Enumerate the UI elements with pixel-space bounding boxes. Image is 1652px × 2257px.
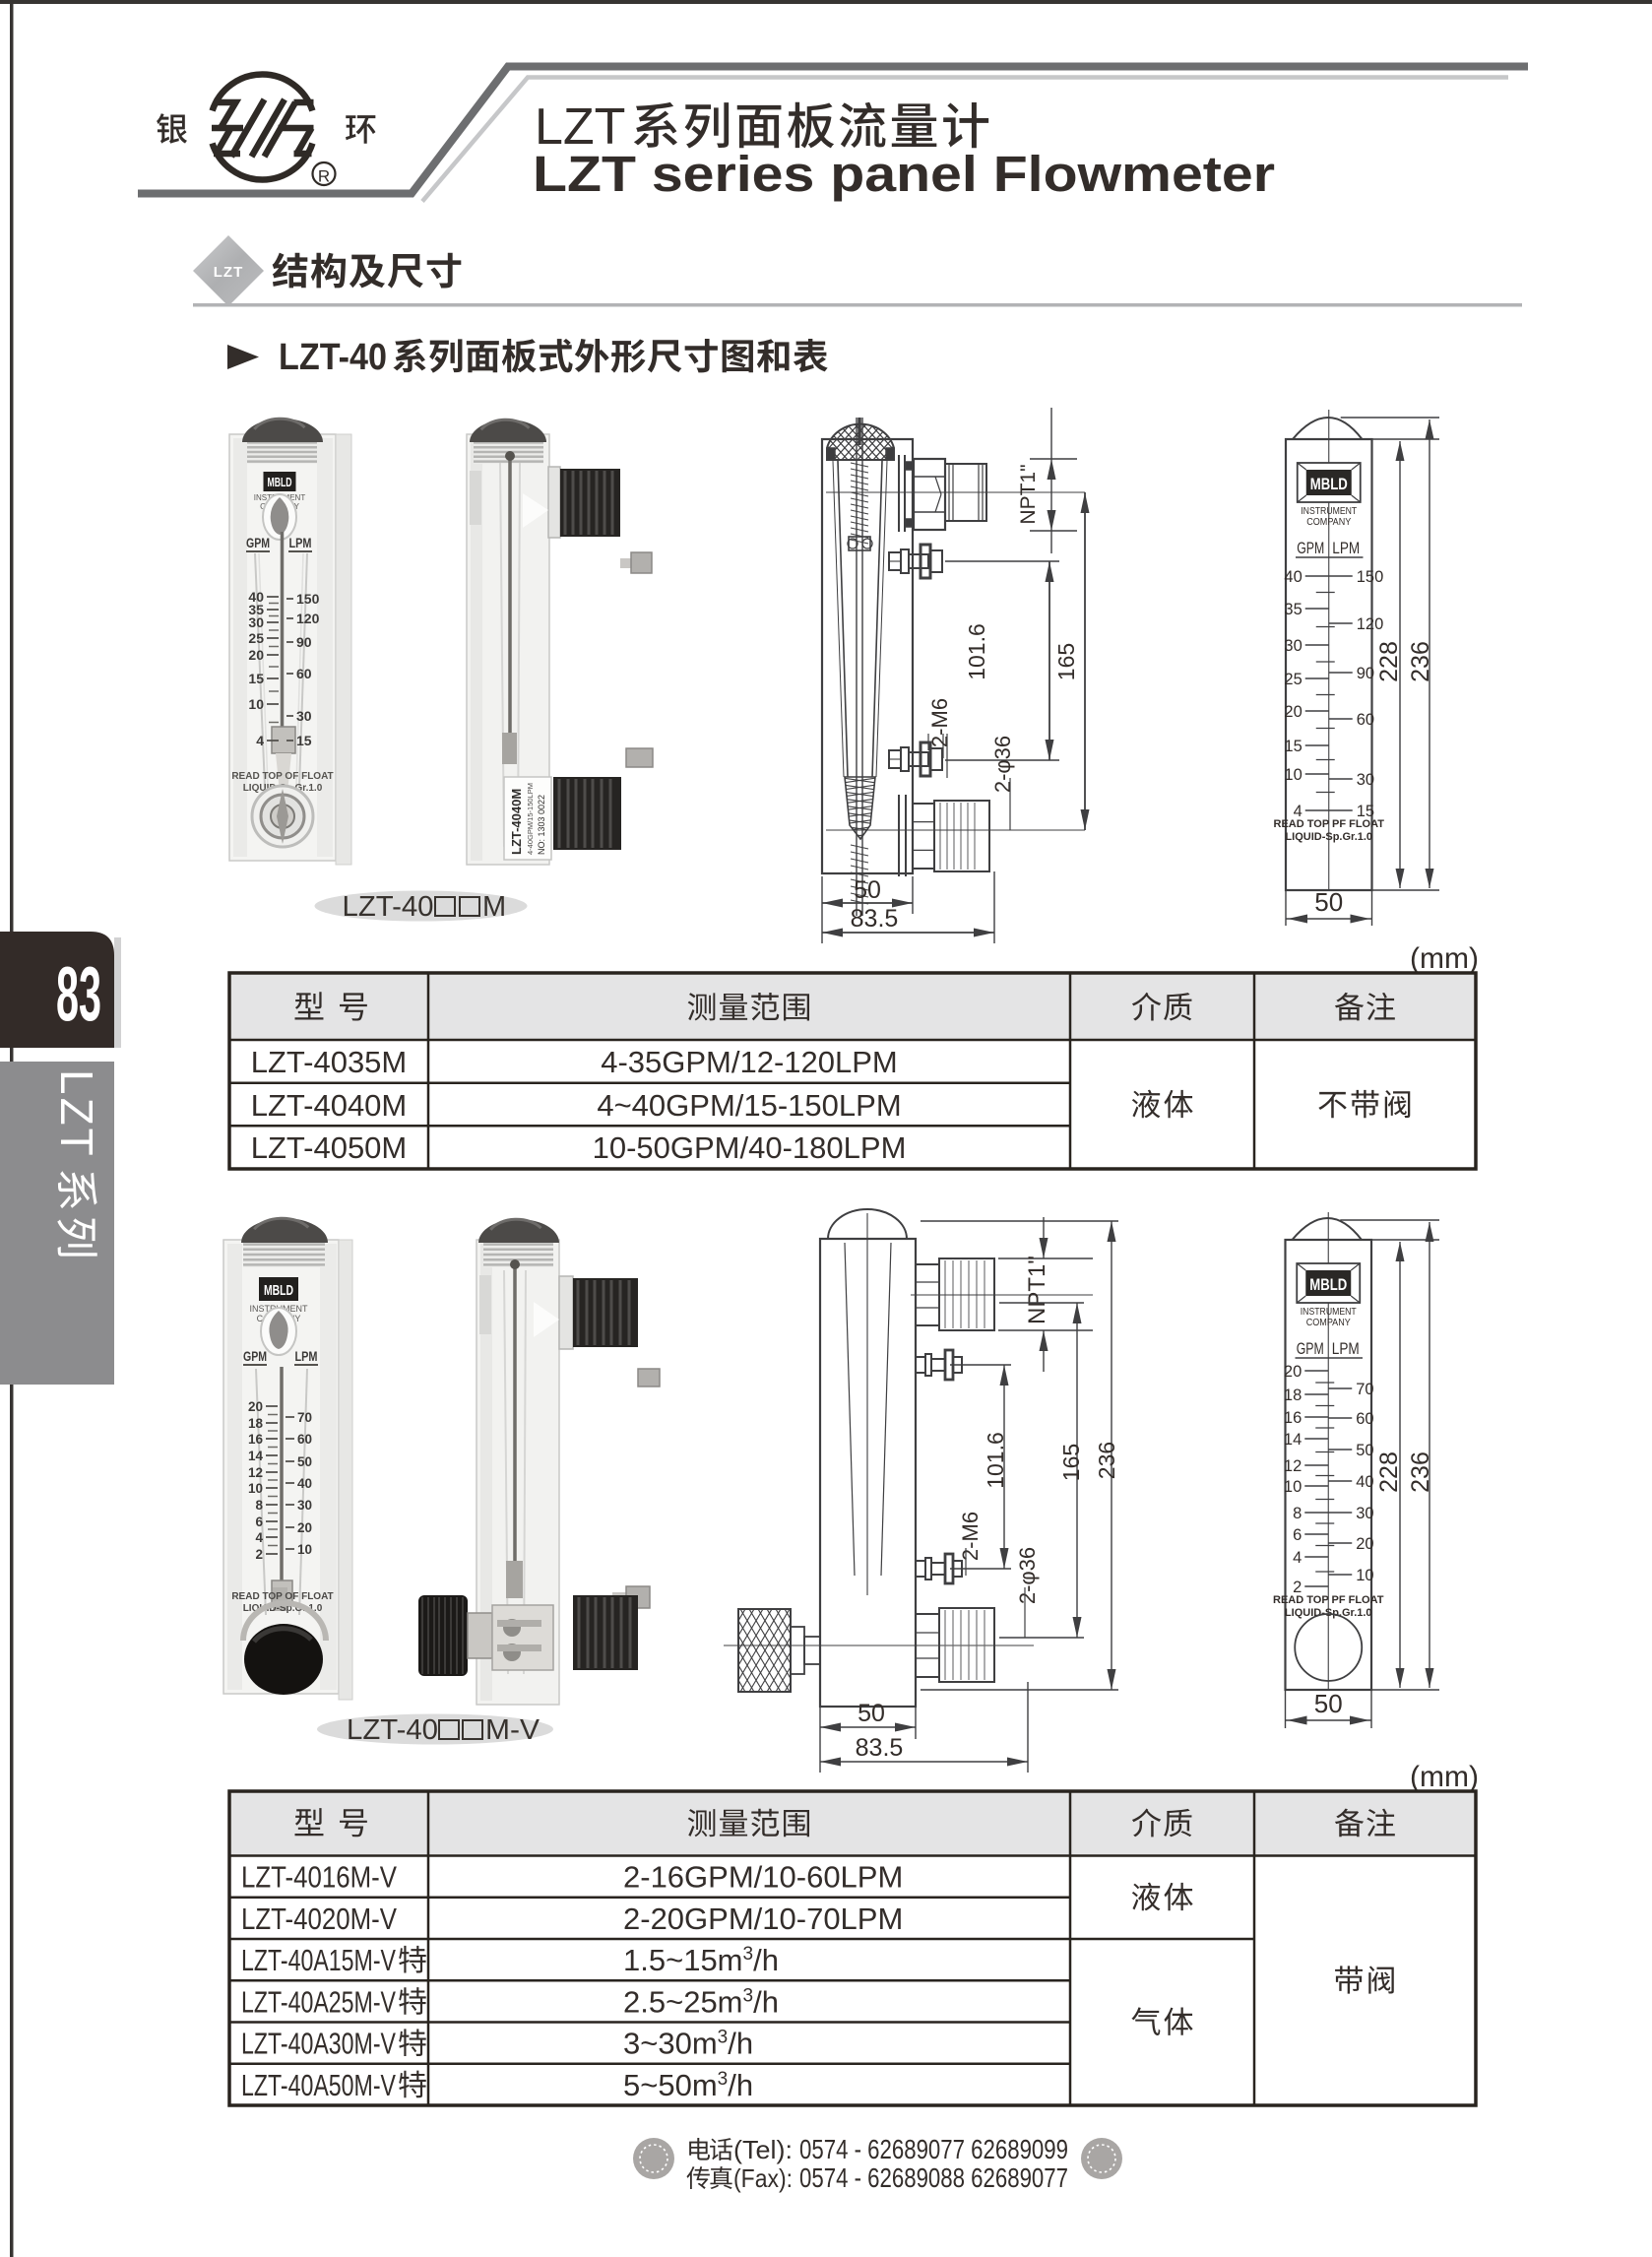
svg-text:60: 60 [296, 666, 312, 681]
svg-text:LZT-4035M: LZT-4035M [251, 1045, 408, 1079]
svg-text:GPM: GPM [246, 536, 270, 550]
svg-text:90: 90 [1357, 665, 1374, 682]
svg-text:READ TOP OF FLOAT: READ TOP OF FLOAT [231, 771, 333, 782]
svg-text:2-M6: 2-M6 [927, 698, 952, 747]
svg-text:10: 10 [1284, 1478, 1302, 1496]
svg-text:50: 50 [1356, 1442, 1373, 1459]
svg-text:LZT-40A25M-V: LZT-40A25M-V [241, 1985, 396, 2019]
svg-text:150: 150 [296, 591, 320, 607]
svg-text:R: R [318, 167, 330, 186]
svg-text:25: 25 [248, 630, 264, 646]
svg-text:LPM: LPM [1332, 1339, 1360, 1358]
svg-text:101.6: 101.6 [983, 1432, 1008, 1489]
svg-text:GPM: GPM [1297, 539, 1324, 557]
svg-text:15: 15 [1284, 738, 1302, 755]
svg-text:14: 14 [1284, 1431, 1302, 1449]
svg-text:70: 70 [1356, 1381, 1373, 1398]
svg-text:165: 165 [1053, 643, 1079, 680]
svg-text:30: 30 [1357, 771, 1374, 789]
svg-text:236: 236 [1407, 1451, 1434, 1493]
svg-text:LZT: LZT [214, 264, 244, 281]
svg-text:30: 30 [297, 1498, 312, 1513]
svg-text:83.5: 83.5 [856, 1734, 904, 1762]
svg-text:NO: 1303 0022: NO: 1303 0022 [537, 795, 546, 855]
svg-text:25: 25 [1284, 671, 1302, 688]
svg-text:LZT-40A30M-V: LZT-40A30M-V [241, 2028, 396, 2061]
svg-text:40: 40 [1284, 568, 1302, 586]
svg-text:2.5~25m3/h: 2.5~25m3/h [623, 1984, 779, 2019]
svg-text:READ TOP PF FLOAT: READ TOP PF FLOAT [1273, 1594, 1384, 1606]
svg-text:40: 40 [1356, 1473, 1373, 1491]
svg-text:(Fax):: (Fax): [733, 2163, 793, 2193]
svg-text:1.5~15m3/h: 1.5~15m3/h [623, 1943, 779, 1977]
svg-text:20: 20 [1356, 1535, 1373, 1553]
svg-text:MBLD: MBLD [1309, 1275, 1347, 1294]
svg-text:6: 6 [255, 1515, 263, 1529]
svg-text:20: 20 [1284, 703, 1302, 721]
svg-text:NPT1": NPT1" [1017, 464, 1040, 524]
svg-text:16: 16 [248, 1432, 264, 1447]
svg-text:2-16GPM/10-60LPM: 2-16GPM/10-60LPM [623, 1860, 903, 1895]
svg-text:60: 60 [1357, 711, 1374, 729]
svg-text:20: 20 [248, 1399, 263, 1414]
svg-text:20: 20 [1284, 1363, 1302, 1381]
svg-text:COMPANY: COMPANY [1306, 1317, 1351, 1328]
svg-text:35: 35 [1284, 601, 1302, 618]
svg-text:M-V: M-V [485, 1714, 540, 1746]
svg-text:LZT-4040M: LZT-4040M [251, 1088, 408, 1123]
svg-text:3~30m3/h: 3~30m3/h [623, 2027, 753, 2061]
svg-text:0574 - 62689077 62689099: 0574 - 62689077 62689099 [799, 2134, 1068, 2164]
svg-text:4~40GPM/15-150LPM: 4~40GPM/15-150LPM [597, 1088, 901, 1123]
svg-text:2-φ36: 2-φ36 [990, 736, 1015, 793]
svg-text:MBLD: MBLD [268, 475, 292, 489]
svg-text:50: 50 [297, 1454, 312, 1469]
svg-text:LIQUID-Sp.Gr.1.0: LIQUID-Sp.Gr.1.0 [1285, 1607, 1372, 1619]
svg-text:10: 10 [248, 696, 264, 712]
svg-text:MBLD: MBLD [264, 1282, 293, 1299]
svg-text:(mm): (mm) [1410, 1761, 1479, 1793]
svg-text:2-φ36: 2-φ36 [1015, 1547, 1040, 1604]
svg-text:4: 4 [255, 1530, 263, 1545]
svg-text:LPM: LPM [1332, 539, 1360, 557]
svg-text:8: 8 [1293, 1505, 1302, 1522]
svg-text:2-M6: 2-M6 [958, 1512, 983, 1561]
svg-text:236: 236 [1407, 641, 1434, 682]
svg-text:MBLD: MBLD [1310, 475, 1348, 493]
svg-text:30: 30 [1284, 637, 1302, 655]
svg-text:5~50m3/h: 5~50m3/h [623, 2068, 753, 2102]
svg-text:90: 90 [296, 634, 312, 650]
svg-text:30: 30 [296, 708, 312, 724]
svg-text:10: 10 [248, 1481, 263, 1496]
svg-text:LPM: LPM [289, 536, 312, 550]
svg-text:14: 14 [248, 1449, 264, 1463]
svg-text:10-50GPM/40-180LPM: 10-50GPM/40-180LPM [593, 1130, 907, 1165]
svg-text:83: 83 [56, 950, 101, 1037]
svg-text:4-35GPM/12-120LPM: 4-35GPM/12-120LPM [601, 1045, 898, 1079]
svg-text:165: 165 [1058, 1444, 1084, 1481]
svg-text:4-40GPM/15-150LPM: 4-40GPM/15-150LPM [526, 783, 535, 855]
svg-text:120: 120 [1357, 615, 1384, 633]
svg-text:40: 40 [297, 1476, 312, 1491]
svg-text:LZT-40A15M-V: LZT-40A15M-V [241, 1944, 396, 1977]
svg-text:20: 20 [248, 647, 264, 663]
svg-text:8: 8 [255, 1498, 263, 1513]
svg-text:LZT series panel Flowmeter: LZT series panel Flowmeter [533, 146, 1275, 202]
svg-text:2-20GPM/10-70LPM: 2-20GPM/10-70LPM [623, 1902, 903, 1936]
svg-text:4: 4 [256, 733, 264, 748]
svg-text:83.5: 83.5 [851, 905, 899, 933]
svg-text:10: 10 [297, 1542, 312, 1557]
svg-text:30: 30 [1356, 1505, 1373, 1522]
svg-text:30: 30 [248, 614, 264, 630]
svg-text:0574 - 62689088 62689077: 0574 - 62689088 62689077 [799, 2162, 1068, 2193]
svg-text:LZT-40: LZT-40 [343, 891, 434, 923]
svg-text:12: 12 [248, 1465, 263, 1480]
svg-text:LPM: LPM [295, 1349, 318, 1364]
svg-text:50: 50 [1314, 1689, 1343, 1718]
svg-text:236: 236 [1094, 1442, 1119, 1479]
svg-text:LZT-4050M: LZT-4050M [251, 1130, 408, 1165]
svg-text:50: 50 [1314, 887, 1343, 917]
svg-text:101.6: 101.6 [964, 623, 989, 680]
svg-text:10: 10 [1284, 766, 1302, 784]
svg-text:(Tel):: (Tel): [733, 2135, 793, 2164]
svg-text:4: 4 [1293, 1549, 1302, 1567]
svg-text:50: 50 [858, 1700, 885, 1727]
svg-text:LZT-4016M-V: LZT-4016M-V [241, 1861, 398, 1895]
svg-text:15: 15 [296, 733, 312, 748]
svg-text:LZT-40: LZT-40 [347, 1714, 438, 1746]
svg-text:LZT-4040M: LZT-4040M [509, 789, 524, 855]
svg-text:15: 15 [248, 671, 264, 686]
svg-text:228: 228 [1375, 1451, 1403, 1493]
svg-text:LIQUID-Sp.Gr.1.0: LIQUID-Sp.Gr.1.0 [1285, 831, 1372, 843]
svg-text:READ TOP PF FLOAT: READ TOP PF FLOAT [1274, 818, 1385, 830]
svg-text:(mm): (mm) [1410, 942, 1479, 975]
svg-text:GPM: GPM [243, 1349, 267, 1364]
svg-text:LZT-4020M-V: LZT-4020M-V [241, 1902, 398, 1936]
svg-text:NPT1": NPT1" [1024, 1256, 1050, 1324]
svg-text:10: 10 [1356, 1567, 1373, 1584]
svg-text:6: 6 [1293, 1526, 1302, 1544]
svg-text:GPM: GPM [1297, 1339, 1324, 1358]
svg-text:20: 20 [297, 1520, 312, 1535]
svg-text:18: 18 [248, 1416, 264, 1431]
svg-text:60: 60 [1356, 1410, 1373, 1428]
svg-text:70: 70 [297, 1410, 312, 1425]
svg-text:COMPANY: COMPANY [1306, 516, 1351, 528]
svg-text:16: 16 [1284, 1409, 1302, 1427]
svg-text:12: 12 [1284, 1457, 1302, 1475]
svg-text:LZT: LZT [51, 1069, 102, 1159]
svg-text:18: 18 [1284, 1386, 1302, 1404]
svg-text:228: 228 [1375, 641, 1403, 682]
svg-text:2: 2 [255, 1547, 263, 1562]
svg-text:LZT-40: LZT-40 [279, 337, 387, 378]
svg-text:150: 150 [1357, 568, 1384, 586]
svg-text:60: 60 [297, 1432, 312, 1447]
svg-text:M: M [482, 891, 506, 923]
svg-text:120: 120 [296, 611, 320, 626]
svg-text:LZT-40A50M-V: LZT-40A50M-V [241, 2069, 396, 2102]
svg-text:50: 50 [854, 876, 881, 904]
